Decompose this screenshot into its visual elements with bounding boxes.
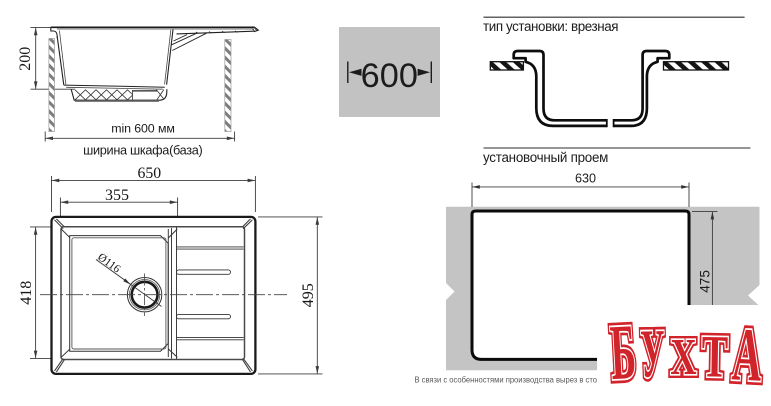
svg-text:200: 200 [17, 47, 34, 71]
svg-text:Х: Х [670, 328, 696, 386]
svg-text:475: 475 [698, 270, 713, 293]
svg-text:600: 600 [361, 57, 418, 95]
svg-text:Т: Т [701, 323, 729, 390]
svg-text:min 600 мм: min 600 мм [111, 122, 175, 136]
svg-text:тип установки: врезная: тип установки: врезная [483, 19, 618, 34]
svg-text:418: 418 [18, 281, 35, 305]
svg-text:У: У [640, 315, 666, 392]
svg-text:установочный проем: установочный проем [483, 150, 608, 165]
svg-text:ширина шкафа(база): ширина шкафа(база) [83, 144, 202, 158]
svg-text:А: А [730, 313, 764, 398]
svg-text:495: 495 [300, 283, 317, 307]
svg-text:355: 355 [105, 187, 129, 204]
svg-text:В связи с особенностями произв: В связи с особенностями производства выр… [415, 374, 629, 384]
svg-text:650: 650 [137, 165, 161, 182]
svg-text:Б: Б [608, 309, 638, 397]
svg-text:630: 630 [575, 172, 596, 186]
